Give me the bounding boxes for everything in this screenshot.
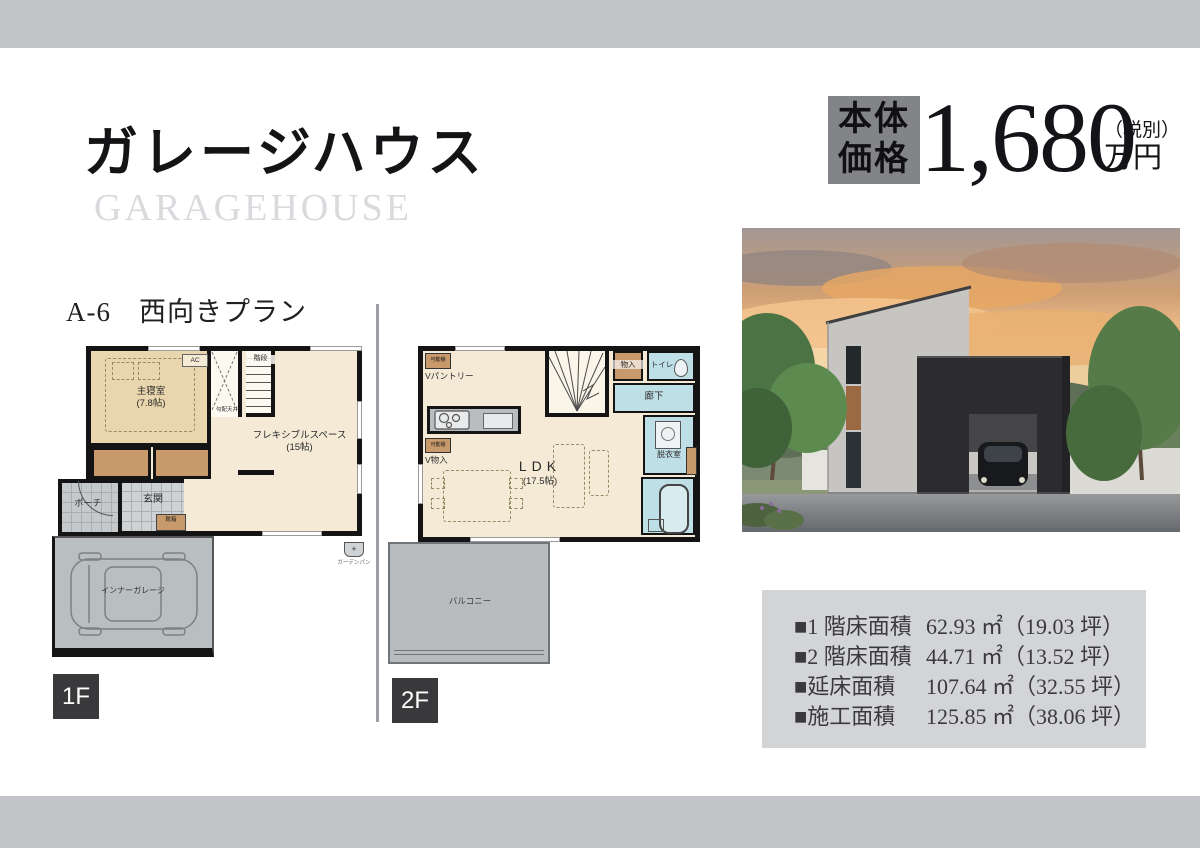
area-row-construction: ■施工面積 125.85 ㎡（38.06 坪） [794,700,1146,730]
sofa-outline [553,444,585,508]
floorplan-1f: 主寝室(7.8帖) AC 勾配天井 階段 フレキシブルスペース(15帖) ポーチ… [52,346,368,662]
garden-pan-label: ガーデンパン [328,560,380,567]
ac-unit-label: AC [182,354,208,367]
storage-left-label: V物入 [425,455,485,466]
bottom-gray-bar [0,796,1200,848]
flexible-space-label: フレキシブルスペース(15帖) [242,430,357,454]
stairs-2f [545,351,609,417]
inner-garage-label: インナーガレージ [80,586,186,596]
area-value: 62.93 ㎡（19.03 坪） [926,609,1124,641]
price-label-line1: 本体 [838,100,910,140]
garage-volume [917,356,1070,496]
lower-window [846,432,861,488]
toilet-label: トイレ [649,360,675,369]
side-table-outline [589,450,609,496]
area-value: 107.64 ㎡（32.55 坪） [926,669,1135,701]
balcony-rail-line [394,650,544,655]
kitchen-counter [427,406,521,434]
sink-icon [483,413,513,429]
floor1-badge: 1F [53,674,99,719]
price-unit: 万円 [1104,142,1180,174]
chair-outline [431,498,445,509]
upper-window [846,346,861,384]
plan-name: A-6 西向きプラン [66,290,307,329]
chair-outline [509,498,523,509]
dressing-room [643,415,695,475]
closet-left [91,447,151,479]
price-tax-note: （税別） [1104,120,1180,142]
window-mark [148,346,200,351]
dining-table-outline [443,470,511,522]
balcony-label: バルコニー [425,596,515,607]
flyer-page: ガレージハウス GARAGEHOUSE 本体 価格 1,680 （税別） 万円 [0,0,1200,848]
storage-shelf: 可動棚 [425,438,451,453]
shoe-box-label: 靴箱 [156,517,186,524]
master-bedroom-label: 主寝室(7.8帖) [101,386,201,410]
dressing-room-label: 脱衣室 [643,450,695,460]
toilet-icon [674,359,688,377]
window-mark [357,401,362,439]
closet-right [153,447,211,479]
area-label: ■施工面積 [794,699,926,731]
chair-outline [509,478,523,489]
window-mark [455,346,505,351]
pillow-outline [112,362,134,380]
storage-top-label: 物入 [613,360,643,369]
cooktop-icon [434,410,470,430]
bath-mat-icon [648,519,664,532]
sloped-ceiling-label: 勾配天井 [209,407,245,414]
floor2-badge: 2F [392,678,438,723]
floor-area-summary-box: ■1 階床面積 62.93 ㎡（19.03 坪） ■2 階床面積 44.71 ㎡… [762,590,1146,748]
entrance-label: 玄関 [124,494,182,507]
area-label: ■1 階床面積 [794,609,926,641]
car [978,442,1028,486]
area-row-total-floor: ■延床面積 107.64 ㎡（32.55 坪） [794,670,1146,700]
area-row-1f: ■1 階床面積 62.93 ㎡（19.03 坪） [794,610,1146,640]
sloped-ceiling-cross [211,351,238,411]
price-suffix: （税別） 万円 [1104,120,1180,174]
plan-divider [376,304,379,722]
hallway-label: 廊下 [613,391,695,403]
area-value: 44.71 ㎡（13.52 坪） [926,639,1124,671]
pillow-outline [138,362,160,380]
price-label-line2: 価格 [838,140,910,180]
pantry-shelf: 可動棚 [425,353,451,369]
chair-outline [431,478,445,489]
exterior-render-image [742,228,1180,532]
floorplan-2f: 可動棚 Vパントリー 可動棚 V物入 LDK(17.5帖) [385,346,707,668]
road [742,494,1180,532]
window-mark [357,464,362,494]
page-title: ガレージハウス [84,108,486,187]
area-row-2f: ■2 階床面積 44.71 ㎡（13.52 坪） [794,640,1146,670]
window-mark [418,464,423,504]
wood-accent-panel [846,386,861,430]
inner-garage-area [52,536,214,657]
price-amount: 1,680 [920,88,1135,188]
window-mark [262,531,322,536]
price-label-box: 本体 価格 [828,96,920,184]
area-value: 125.85 ㎡（38.06 坪） [926,699,1135,731]
washing-machine-icon [655,421,681,449]
interior-wall-stub [238,470,274,475]
garden-pan: + [344,542,364,557]
page-subtitle: GARAGEHOUSE [94,186,412,230]
top-gray-bar [0,0,1200,48]
window-mark [310,346,362,351]
porch-label: ポーチ [60,498,116,509]
pantry-label: Vパントリー [425,371,495,382]
area-label: ■2 階床面積 [794,639,926,671]
stair-fan-lines [549,351,605,413]
stairs-label: 階段 [246,355,275,364]
bathroom [641,477,695,535]
area-label: ■延床面積 [794,669,926,701]
